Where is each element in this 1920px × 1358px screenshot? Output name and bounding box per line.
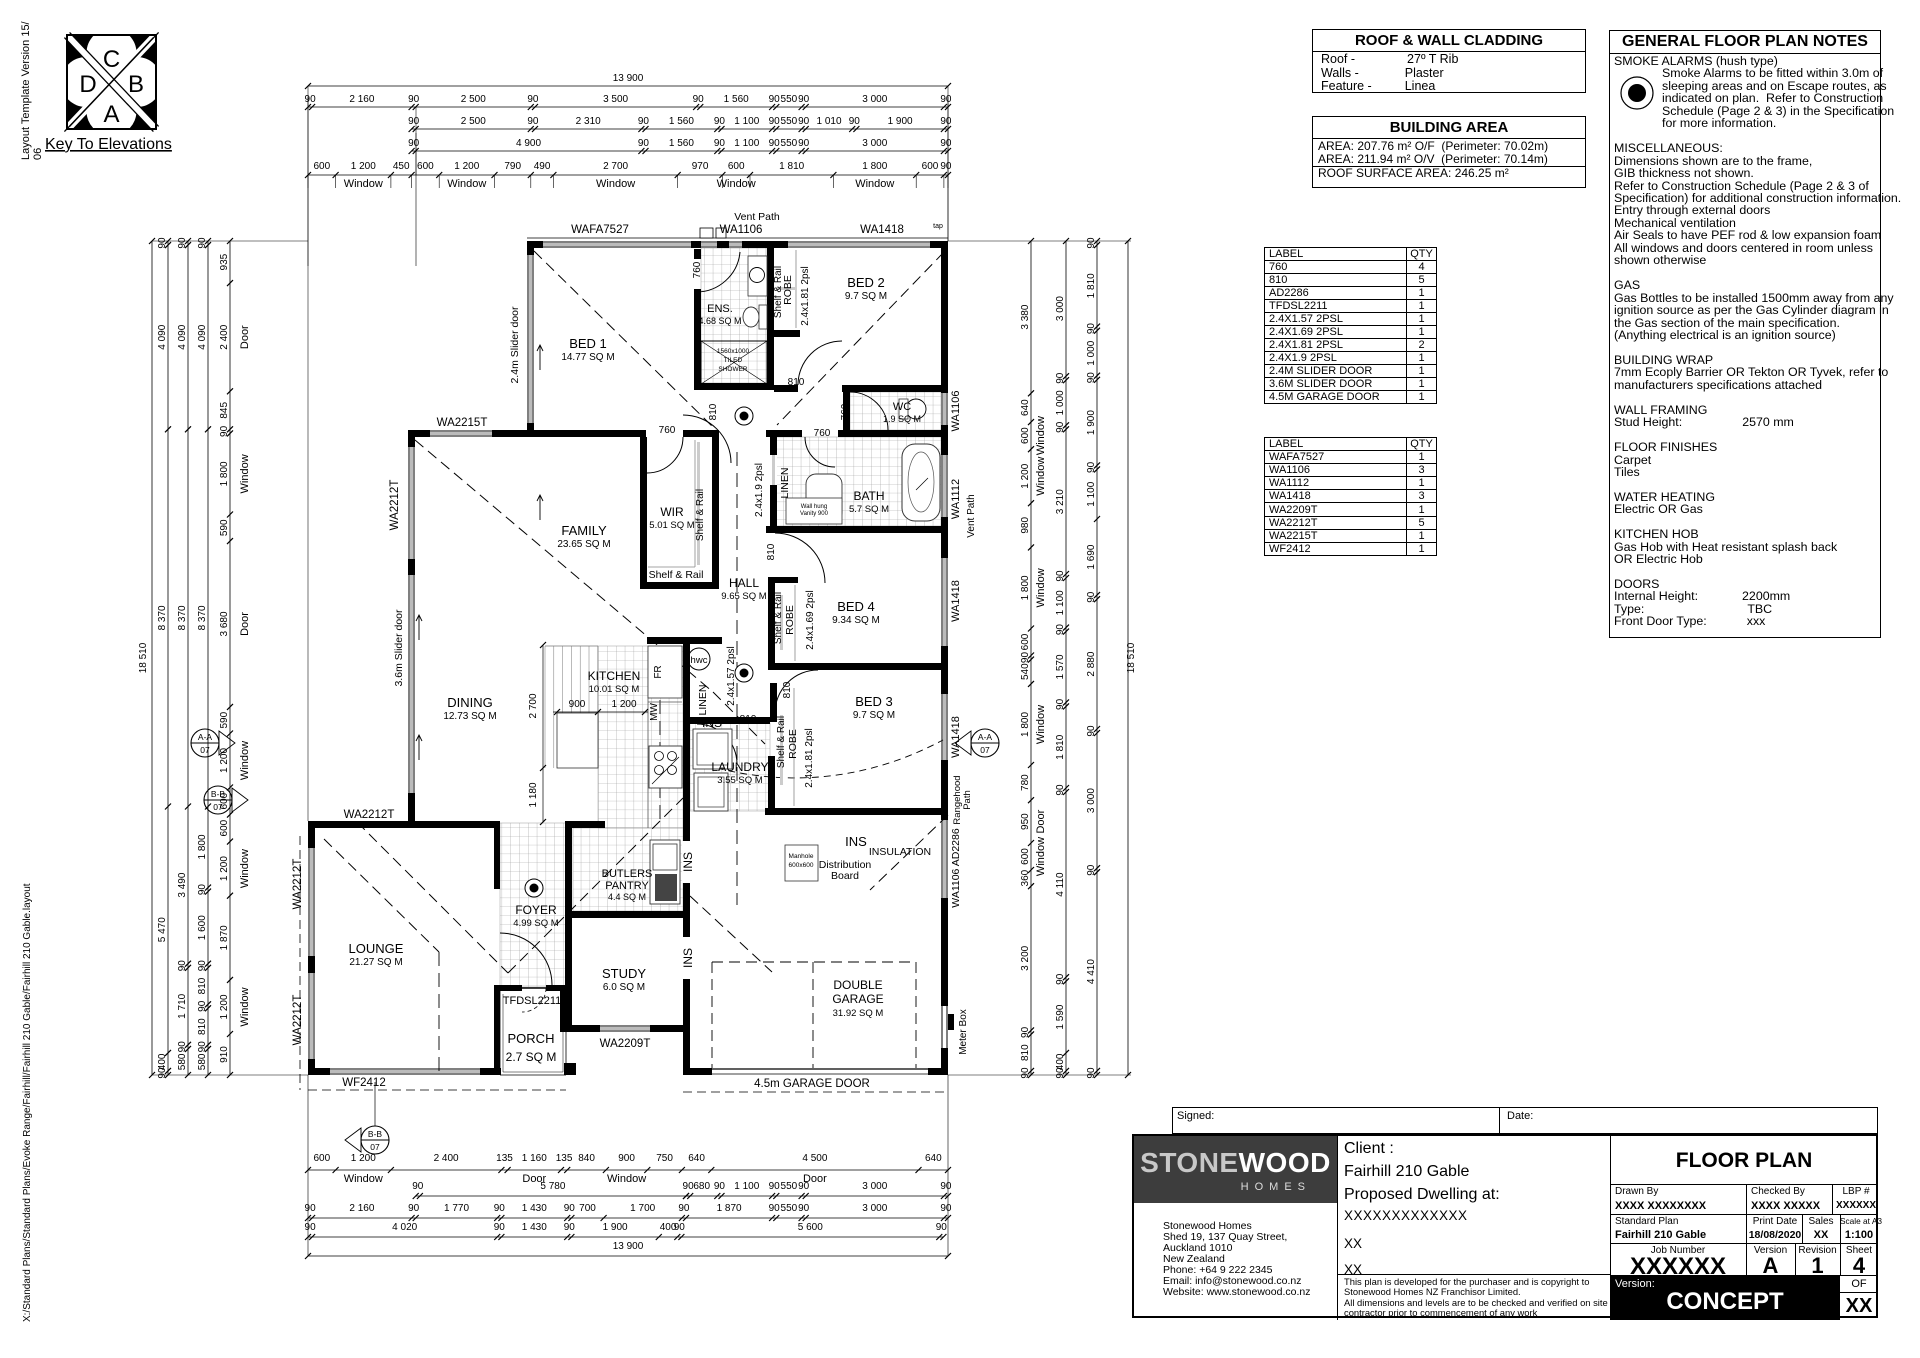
- svg-text:90: 90: [219, 425, 230, 437]
- svg-text:810: 810: [766, 543, 777, 560]
- svg-text:2 500: 2 500: [461, 116, 486, 127]
- svg-text:4 090: 4 090: [197, 324, 208, 349]
- svg-text:4.68 SQ M: 4.68 SQ M: [698, 316, 741, 326]
- svg-text:5.01 SQ M: 5.01 SQ M: [649, 520, 694, 531]
- svg-text:STUDY: STUDY: [602, 966, 646, 981]
- svg-text:Window: Window: [607, 1173, 646, 1185]
- svg-text:90: 90: [940, 1203, 952, 1214]
- svg-text:600: 600: [1020, 427, 1031, 444]
- svg-text:1 590: 1 590: [1055, 1004, 1066, 1029]
- svg-text:9.7 SQ M: 9.7 SQ M: [853, 710, 895, 721]
- svg-text:810: 810: [788, 377, 805, 388]
- svg-text:750: 750: [656, 1153, 673, 1164]
- svg-text:90: 90: [527, 116, 539, 127]
- svg-text:Door: Door: [1035, 809, 1047, 833]
- svg-text:1 200: 1 200: [351, 1153, 376, 1164]
- svg-text:90: 90: [1055, 1067, 1066, 1079]
- svg-text:1 200: 1 200: [351, 161, 376, 172]
- svg-text:590: 590: [219, 711, 230, 728]
- svg-text:8 370: 8 370: [177, 605, 188, 630]
- svg-text:580: 580: [177, 1053, 188, 1070]
- svg-text:1 870: 1 870: [717, 1203, 742, 1214]
- svg-text:GARAGE: GARAGE: [832, 992, 883, 1006]
- svg-text:3 000: 3 000: [862, 1181, 887, 1192]
- svg-text:1 200: 1 200: [219, 748, 230, 773]
- svg-text:31.92 SQ M: 31.92 SQ M: [833, 1008, 884, 1019]
- svg-text:4 090: 4 090: [177, 324, 188, 349]
- svg-text:1 000: 1 000: [1055, 390, 1066, 415]
- svg-text:90: 90: [1086, 461, 1097, 473]
- svg-text:Board: Board: [831, 870, 859, 882]
- svg-text:490: 490: [534, 161, 551, 172]
- svg-text:BUTLERS: BUTLERS: [602, 868, 653, 880]
- svg-text:Window: Window: [1035, 705, 1047, 744]
- svg-text:Window: Window: [1035, 837, 1047, 876]
- svg-text:90: 90: [769, 1181, 781, 1192]
- svg-text:Window: Window: [1035, 416, 1047, 455]
- svg-text:07: 07: [200, 745, 210, 755]
- svg-text:90: 90: [849, 116, 861, 127]
- svg-text:Wall hung: Wall hung: [801, 504, 827, 510]
- svg-text:ROBE: ROBE: [782, 275, 794, 305]
- svg-text:WA1106: WA1106: [720, 224, 763, 236]
- svg-text:1 430: 1 430: [522, 1222, 547, 1233]
- svg-text:90: 90: [638, 138, 650, 149]
- svg-text:1 810: 1 810: [779, 161, 804, 172]
- svg-text:3 200: 3 200: [1020, 945, 1031, 970]
- svg-text:WA2212T: WA2212T: [292, 995, 304, 1046]
- svg-text:WA2209T: WA2209T: [600, 1038, 651, 1050]
- svg-text:WC: WC: [893, 401, 911, 413]
- svg-text:21.27 SQ M: 21.27 SQ M: [349, 957, 402, 968]
- svg-text:2.4x1.69 2psl: 2.4x1.69 2psl: [805, 590, 816, 650]
- svg-text:8 370: 8 370: [197, 605, 208, 630]
- svg-text:2.4x1.81 2psl: 2.4x1.81 2psl: [804, 728, 815, 788]
- svg-text:Vanity 900: Vanity 900: [800, 511, 829, 517]
- svg-text:135: 135: [496, 1153, 513, 1164]
- svg-text:450: 450: [393, 161, 410, 172]
- svg-text:90: 90: [564, 1222, 576, 1233]
- svg-text:900: 900: [618, 1153, 635, 1164]
- svg-text:BED 2: BED 2: [847, 275, 885, 290]
- svg-text:LOUNGE: LOUNGE: [349, 941, 404, 956]
- svg-text:INSULATION: INSULATION: [869, 846, 931, 858]
- svg-text:PANTRY: PANTRY: [605, 880, 649, 892]
- svg-text:680: 680: [693, 1181, 710, 1192]
- svg-text:Window: Window: [447, 178, 486, 190]
- svg-text:90: 90: [769, 1203, 781, 1214]
- svg-text:1 900: 1 900: [603, 1222, 628, 1233]
- svg-text:Shelf & Rail: Shelf & Rail: [695, 489, 706, 541]
- svg-text:Window: Window: [344, 1173, 383, 1185]
- svg-text:1 000: 1 000: [1086, 340, 1097, 365]
- svg-text:90: 90: [197, 884, 208, 896]
- svg-text:980: 980: [1020, 517, 1031, 534]
- svg-text:90: 90: [940, 1181, 952, 1192]
- svg-text:1 710: 1 710: [177, 993, 188, 1018]
- svg-text:90: 90: [177, 237, 188, 249]
- svg-text:3 380: 3 380: [1020, 304, 1031, 329]
- svg-text:WA2215T: WA2215T: [437, 417, 488, 429]
- svg-text:9.7 SQ M: 9.7 SQ M: [845, 291, 887, 302]
- svg-text:Key To Elevations: Key To Elevations: [45, 136, 172, 153]
- svg-text:780: 780: [1020, 774, 1031, 791]
- svg-text:13 900: 13 900: [613, 73, 644, 84]
- svg-text:90: 90: [638, 116, 650, 127]
- svg-text:BATH: BATH: [853, 489, 884, 503]
- svg-text:90: 90: [936, 1222, 948, 1233]
- svg-text:DINING: DINING: [447, 695, 493, 710]
- svg-text:ROBE: ROBE: [784, 605, 796, 635]
- svg-text:2 310: 2 310: [576, 116, 601, 127]
- svg-text:90: 90: [197, 1041, 208, 1053]
- svg-text:935: 935: [219, 253, 230, 270]
- svg-text:790: 790: [504, 161, 521, 172]
- svg-text:WA1418: WA1418: [860, 224, 904, 236]
- svg-text:Door: Door: [239, 325, 251, 349]
- svg-text:90: 90: [408, 116, 420, 127]
- svg-text:90: 90: [1086, 725, 1097, 737]
- svg-text:600: 600: [728, 161, 745, 172]
- svg-text:Window: Window: [1035, 457, 1047, 496]
- svg-text:90: 90: [1055, 570, 1066, 582]
- svg-text:Window: Window: [344, 178, 383, 190]
- svg-text:90: 90: [527, 94, 539, 105]
- svg-text:8 370: 8 370: [157, 605, 168, 630]
- svg-text:1 160: 1 160: [522, 1153, 547, 1164]
- svg-text:90: 90: [693, 94, 705, 105]
- svg-text:Window: Window: [239, 987, 251, 1026]
- svg-text:550: 550: [781, 1203, 798, 1214]
- svg-text:90: 90: [157, 1067, 168, 1079]
- svg-text:760: 760: [692, 261, 703, 278]
- svg-text:MW: MW: [649, 703, 660, 721]
- svg-text:550: 550: [781, 94, 798, 105]
- svg-text:90: 90: [177, 960, 188, 972]
- svg-text:90: 90: [1055, 784, 1066, 796]
- svg-text:INS: INS: [702, 716, 722, 730]
- svg-text:1.9 SQ M: 1.9 SQ M: [883, 414, 921, 424]
- svg-text:590: 590: [219, 519, 230, 536]
- svg-text:600x600: 600x600: [789, 862, 814, 869]
- svg-text:2.4x1.57 2psl: 2.4x1.57 2psl: [726, 646, 737, 706]
- svg-text:Manhole: Manhole: [789, 853, 814, 860]
- svg-text:600: 600: [313, 1153, 330, 1164]
- svg-text:2 880: 2 880: [1086, 651, 1097, 676]
- svg-text:90: 90: [714, 1181, 726, 1192]
- svg-text:90: 90: [940, 138, 952, 149]
- svg-text:1 200: 1 200: [219, 994, 230, 1019]
- svg-text:640: 640: [1020, 399, 1031, 416]
- svg-text:WIR: WIR: [660, 505, 684, 519]
- svg-text:2.4x1.81 2psl: 2.4x1.81 2psl: [800, 266, 811, 326]
- svg-text:90: 90: [1086, 1067, 1097, 1079]
- svg-text:810: 810: [197, 1018, 208, 1035]
- svg-text:PORCH: PORCH: [508, 1031, 555, 1046]
- svg-text:5 780: 5 780: [540, 1181, 565, 1192]
- svg-text:Window: Window: [855, 178, 894, 190]
- svg-text:1 870: 1 870: [219, 925, 230, 950]
- svg-text:1 800: 1 800: [1020, 575, 1031, 600]
- svg-text:90: 90: [197, 960, 208, 972]
- svg-text:1 900: 1 900: [888, 116, 913, 127]
- svg-text:4 500: 4 500: [802, 1153, 827, 1164]
- svg-text:hwc: hwc: [691, 655, 708, 666]
- svg-text:WA1106: WA1106: [950, 391, 962, 432]
- svg-text:550: 550: [781, 1181, 798, 1192]
- svg-text:13 900: 13 900: [613, 1241, 644, 1252]
- svg-text:3 680: 3 680: [219, 611, 230, 636]
- svg-text:90: 90: [412, 1181, 424, 1192]
- svg-text:1 200: 1 200: [1020, 463, 1031, 488]
- svg-text:Shelf & Rail: Shelf & Rail: [649, 569, 704, 581]
- svg-text:90: 90: [197, 237, 208, 249]
- svg-text:2 400: 2 400: [434, 1153, 459, 1164]
- svg-text:3 000: 3 000: [862, 138, 887, 149]
- svg-text:Window: Window: [239, 454, 251, 493]
- svg-text:Window: Window: [596, 178, 635, 190]
- svg-text:TILED: TILED: [724, 357, 743, 364]
- svg-text:90: 90: [1055, 698, 1066, 710]
- svg-text:WA2212T: WA2212T: [344, 809, 395, 821]
- svg-text:2 400: 2 400: [219, 324, 230, 349]
- svg-text:810: 810: [740, 714, 757, 725]
- svg-text:970: 970: [692, 161, 709, 172]
- svg-text:1 010: 1 010: [816, 116, 841, 127]
- svg-text:1 800: 1 800: [862, 161, 887, 172]
- svg-text:845: 845: [219, 402, 230, 419]
- svg-text:640: 640: [925, 1153, 942, 1164]
- svg-text:1560x1000: 1560x1000: [717, 348, 750, 355]
- svg-text:4 900: 4 900: [516, 138, 541, 149]
- svg-text:2 700: 2 700: [603, 161, 628, 172]
- svg-text:WA1106 AD2286: WA1106 AD2286: [950, 828, 962, 908]
- svg-text:600: 600: [922, 161, 939, 172]
- svg-text:5 470: 5 470: [157, 917, 168, 942]
- svg-text:6.0 SQ M: 6.0 SQ M: [603, 982, 645, 993]
- svg-text:BED 1: BED 1: [569, 336, 607, 351]
- svg-text:760: 760: [659, 425, 676, 436]
- svg-text:900: 900: [569, 699, 586, 710]
- svg-text:3 000: 3 000: [1086, 788, 1097, 813]
- svg-text:90: 90: [494, 1203, 506, 1214]
- svg-text:SHOWER: SHOWER: [718, 366, 748, 373]
- svg-text:1 560: 1 560: [724, 94, 749, 105]
- svg-text:C: C: [103, 46, 120, 73]
- svg-text:90: 90: [714, 116, 726, 127]
- svg-text:10.01 SQ M: 10.01 SQ M: [589, 684, 640, 695]
- svg-text:2.4m Slider door: 2.4m Slider door: [509, 306, 521, 384]
- svg-text:9.34 SQ M: 9.34 SQ M: [832, 615, 880, 626]
- svg-text:2.4x1.9 2psl: 2.4x1.9 2psl: [754, 463, 765, 517]
- svg-text:3.6m Slider door: 3.6m Slider door: [393, 609, 405, 687]
- svg-text:BED 3: BED 3: [855, 694, 893, 709]
- svg-text:2 700: 2 700: [528, 693, 539, 718]
- svg-text:90: 90: [1086, 372, 1097, 384]
- svg-text:4.4 SQ M: 4.4 SQ M: [608, 892, 646, 902]
- svg-text:4.5m GARAGE DOOR: 4.5m GARAGE DOOR: [754, 1078, 870, 1090]
- svg-text:1 100: 1 100: [734, 116, 759, 127]
- svg-text:FAMILY: FAMILY: [561, 523, 607, 538]
- svg-text:90: 90: [714, 138, 726, 149]
- svg-text:LINEN: LINEN: [697, 685, 709, 716]
- svg-text:90: 90: [1055, 624, 1066, 636]
- svg-text:90: 90: [1086, 323, 1097, 335]
- svg-text:Window: Window: [1035, 568, 1047, 607]
- svg-text:WF2412: WF2412: [342, 1077, 385, 1089]
- svg-text:A: A: [103, 101, 119, 128]
- svg-text:tap: tap: [933, 223, 943, 230]
- svg-text:1 200: 1 200: [219, 856, 230, 881]
- svg-text:B-B: B-B: [368, 1129, 383, 1139]
- svg-text:HALL: HALL: [729, 576, 759, 590]
- svg-text:2 500: 2 500: [461, 94, 486, 105]
- svg-text:4 020: 4 020: [392, 1222, 417, 1233]
- svg-text:WA1418: WA1418: [950, 580, 962, 622]
- svg-text:90: 90: [940, 94, 952, 105]
- svg-text:760: 760: [840, 403, 851, 420]
- svg-text:1 800: 1 800: [219, 461, 230, 486]
- svg-text:1 560: 1 560: [669, 116, 694, 127]
- svg-text:FOYER: FOYER: [515, 903, 557, 917]
- svg-text:Shelf & Rail: Shelf & Rail: [773, 592, 784, 644]
- svg-text:1 810: 1 810: [1055, 734, 1066, 759]
- svg-text:12.73 SQ M: 12.73 SQ M: [443, 711, 496, 722]
- svg-text:90: 90: [1020, 652, 1031, 664]
- svg-text:1 100: 1 100: [734, 1181, 759, 1192]
- svg-text:07: 07: [370, 1142, 380, 1152]
- svg-text:90: 90: [769, 138, 781, 149]
- svg-text:Window: Window: [239, 849, 251, 888]
- svg-text:5 600: 5 600: [798, 1222, 823, 1233]
- svg-text:1 100: 1 100: [734, 138, 759, 149]
- svg-text:90: 90: [1086, 591, 1097, 603]
- svg-text:90: 90: [674, 1222, 686, 1233]
- svg-text:Vent Path: Vent Path: [966, 494, 977, 537]
- svg-text:FR: FR: [653, 665, 664, 678]
- svg-text:ENS.: ENS.: [707, 303, 733, 315]
- svg-text:90: 90: [408, 138, 420, 149]
- svg-text:4 410: 4 410: [1086, 959, 1097, 984]
- svg-text:2.7 SQ M: 2.7 SQ M: [506, 1050, 557, 1064]
- svg-text:LINEN: LINEN: [779, 468, 791, 499]
- svg-text:1 690: 1 690: [1086, 544, 1097, 569]
- svg-text:360: 360: [1020, 869, 1031, 886]
- svg-text:1 570: 1 570: [1055, 654, 1066, 679]
- svg-text:1 430: 1 430: [522, 1203, 547, 1214]
- svg-text:1 700: 1 700: [630, 1203, 655, 1214]
- svg-text:700: 700: [579, 1203, 596, 1214]
- svg-text:90: 90: [564, 1203, 576, 1214]
- svg-text:18 510: 18 510: [1126, 642, 1137, 673]
- svg-text:4 090: 4 090: [157, 324, 168, 349]
- svg-text:3 000: 3 000: [862, 1203, 887, 1214]
- svg-text:BED 4: BED 4: [837, 599, 875, 614]
- svg-text:WA1418: WA1418: [950, 716, 962, 758]
- svg-text:3 000: 3 000: [862, 94, 887, 105]
- svg-text:A-A: A-A: [198, 732, 213, 742]
- svg-text:90: 90: [1086, 237, 1097, 249]
- svg-text:90: 90: [798, 138, 810, 149]
- svg-text:INS: INS: [845, 834, 867, 849]
- svg-text:1 200: 1 200: [611, 699, 636, 710]
- svg-text:Door: Door: [239, 612, 251, 636]
- svg-text:550: 550: [781, 138, 798, 149]
- svg-text:90: 90: [1055, 421, 1066, 433]
- svg-text:90: 90: [494, 1222, 506, 1233]
- svg-text:90: 90: [678, 1203, 690, 1214]
- svg-text:90: 90: [1020, 1026, 1031, 1038]
- svg-text:90: 90: [1020, 1067, 1031, 1079]
- svg-text:600: 600: [1020, 848, 1031, 865]
- svg-text:DOUBLE: DOUBLE: [833, 978, 882, 992]
- svg-text:90: 90: [940, 116, 952, 127]
- svg-text:TFDSL2211: TFDSL2211: [503, 995, 562, 1007]
- svg-text:1 800: 1 800: [1020, 712, 1031, 737]
- svg-text:90: 90: [798, 1203, 810, 1214]
- svg-text:WA2212T: WA2212T: [389, 480, 401, 531]
- svg-text:KITCHEN: KITCHEN: [588, 669, 641, 683]
- svg-text:760: 760: [814, 428, 831, 439]
- svg-text:600: 600: [313, 161, 330, 172]
- svg-text:23.65 SQ M: 23.65 SQ M: [557, 539, 610, 550]
- svg-text:90: 90: [305, 1203, 317, 1214]
- svg-text:2 160: 2 160: [349, 94, 374, 105]
- svg-text:Vent Path: Vent Path: [734, 211, 780, 223]
- svg-text:WA2212T: WA2212T: [292, 859, 304, 910]
- svg-text:580: 580: [197, 1053, 208, 1070]
- svg-text:810: 810: [708, 403, 719, 420]
- svg-text:810: 810: [1020, 1044, 1031, 1061]
- svg-text:90: 90: [305, 1222, 317, 1233]
- svg-text:1 770: 1 770: [444, 1203, 469, 1214]
- svg-text:INS: INS: [681, 948, 695, 968]
- svg-text:90: 90: [940, 161, 952, 172]
- svg-text:3 210: 3 210: [1055, 489, 1066, 514]
- svg-text:840: 840: [578, 1153, 595, 1164]
- svg-text:4.99 SQ M: 4.99 SQ M: [513, 918, 558, 929]
- svg-text:Path: Path: [962, 790, 973, 810]
- svg-text:5.7 SQ M: 5.7 SQ M: [849, 504, 889, 515]
- svg-text:600: 600: [219, 819, 230, 836]
- svg-text:14.77 SQ M: 14.77 SQ M: [561, 352, 614, 363]
- svg-text:90: 90: [769, 116, 781, 127]
- svg-text:1 100: 1 100: [1055, 590, 1066, 615]
- svg-text:4 110: 4 110: [1055, 872, 1066, 897]
- svg-text:90: 90: [197, 1000, 208, 1012]
- svg-text:1 100: 1 100: [1086, 481, 1097, 506]
- svg-text:9.65 SQ M: 9.65 SQ M: [721, 591, 766, 602]
- svg-text:Meter Box: Meter Box: [958, 1009, 969, 1055]
- svg-text:Shelf & Rail: Shelf & Rail: [776, 716, 787, 768]
- svg-text:90: 90: [408, 1203, 420, 1214]
- svg-text:1 200: 1 200: [454, 161, 479, 172]
- svg-text:90: 90: [157, 237, 168, 249]
- svg-text:1 810: 1 810: [1086, 273, 1097, 298]
- svg-text:WA1112: WA1112: [950, 479, 962, 519]
- svg-text:Window: Window: [239, 741, 251, 780]
- svg-text:3 000: 3 000: [1055, 296, 1066, 321]
- svg-text:550: 550: [781, 116, 798, 127]
- svg-text:07: 07: [980, 745, 990, 755]
- svg-text:B: B: [128, 71, 144, 98]
- svg-text:D: D: [79, 71, 96, 98]
- svg-text:18 510: 18 510: [138, 642, 149, 673]
- svg-text:90: 90: [1055, 973, 1066, 985]
- svg-text:90: 90: [1055, 372, 1066, 384]
- svg-text:90: 90: [177, 1041, 188, 1053]
- svg-text:1 560: 1 560: [669, 138, 694, 149]
